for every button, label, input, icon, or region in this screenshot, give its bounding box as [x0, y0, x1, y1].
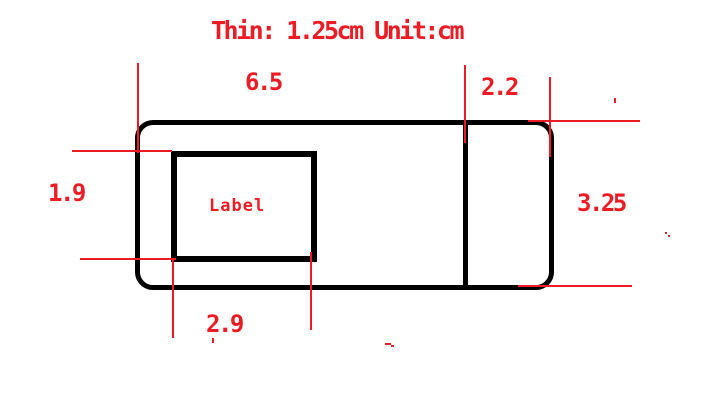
extension-line-label-right-vertical: [310, 252, 312, 330]
dimension-label-top-width: 6.5: [245, 70, 281, 94]
extension-line-top-right-horizontal: [528, 120, 640, 122]
dimension-label-right-section-width: 2.2: [481, 75, 517, 99]
label-text: Label: [209, 198, 265, 215]
stray-mark: [614, 98, 616, 103]
extension-line-top-left-vertical: [137, 63, 139, 153]
section-divider-line: [463, 124, 468, 286]
diagram-canvas: Thin: 1.25cm Unit:cm Label 6.5 2.2 1.9 3…: [0, 0, 707, 418]
extension-line-label-left-vertical: [172, 259, 174, 338]
extension-line-bottom-right-horizontal: [518, 285, 632, 287]
extension-line-divider-vertical: [464, 65, 466, 143]
stray-mark: [668, 235, 670, 237]
extension-line-right-edge-vertical: [549, 77, 551, 157]
extension-line-label-bottom-horizontal: [80, 258, 176, 260]
stray-mark: [665, 232, 667, 234]
stray-mark: [391, 345, 394, 347]
stray-mark: [212, 338, 214, 343]
dimension-label-label-width: 2.9: [206, 312, 242, 336]
dimension-label-label-height: 1.9: [48, 181, 84, 205]
dimension-label-right-height: 3.25: [577, 191, 625, 215]
diagram-title: Thin: 1.25cm Unit:cm: [211, 18, 462, 43]
extension-line-label-top-horizontal: [72, 150, 172, 152]
